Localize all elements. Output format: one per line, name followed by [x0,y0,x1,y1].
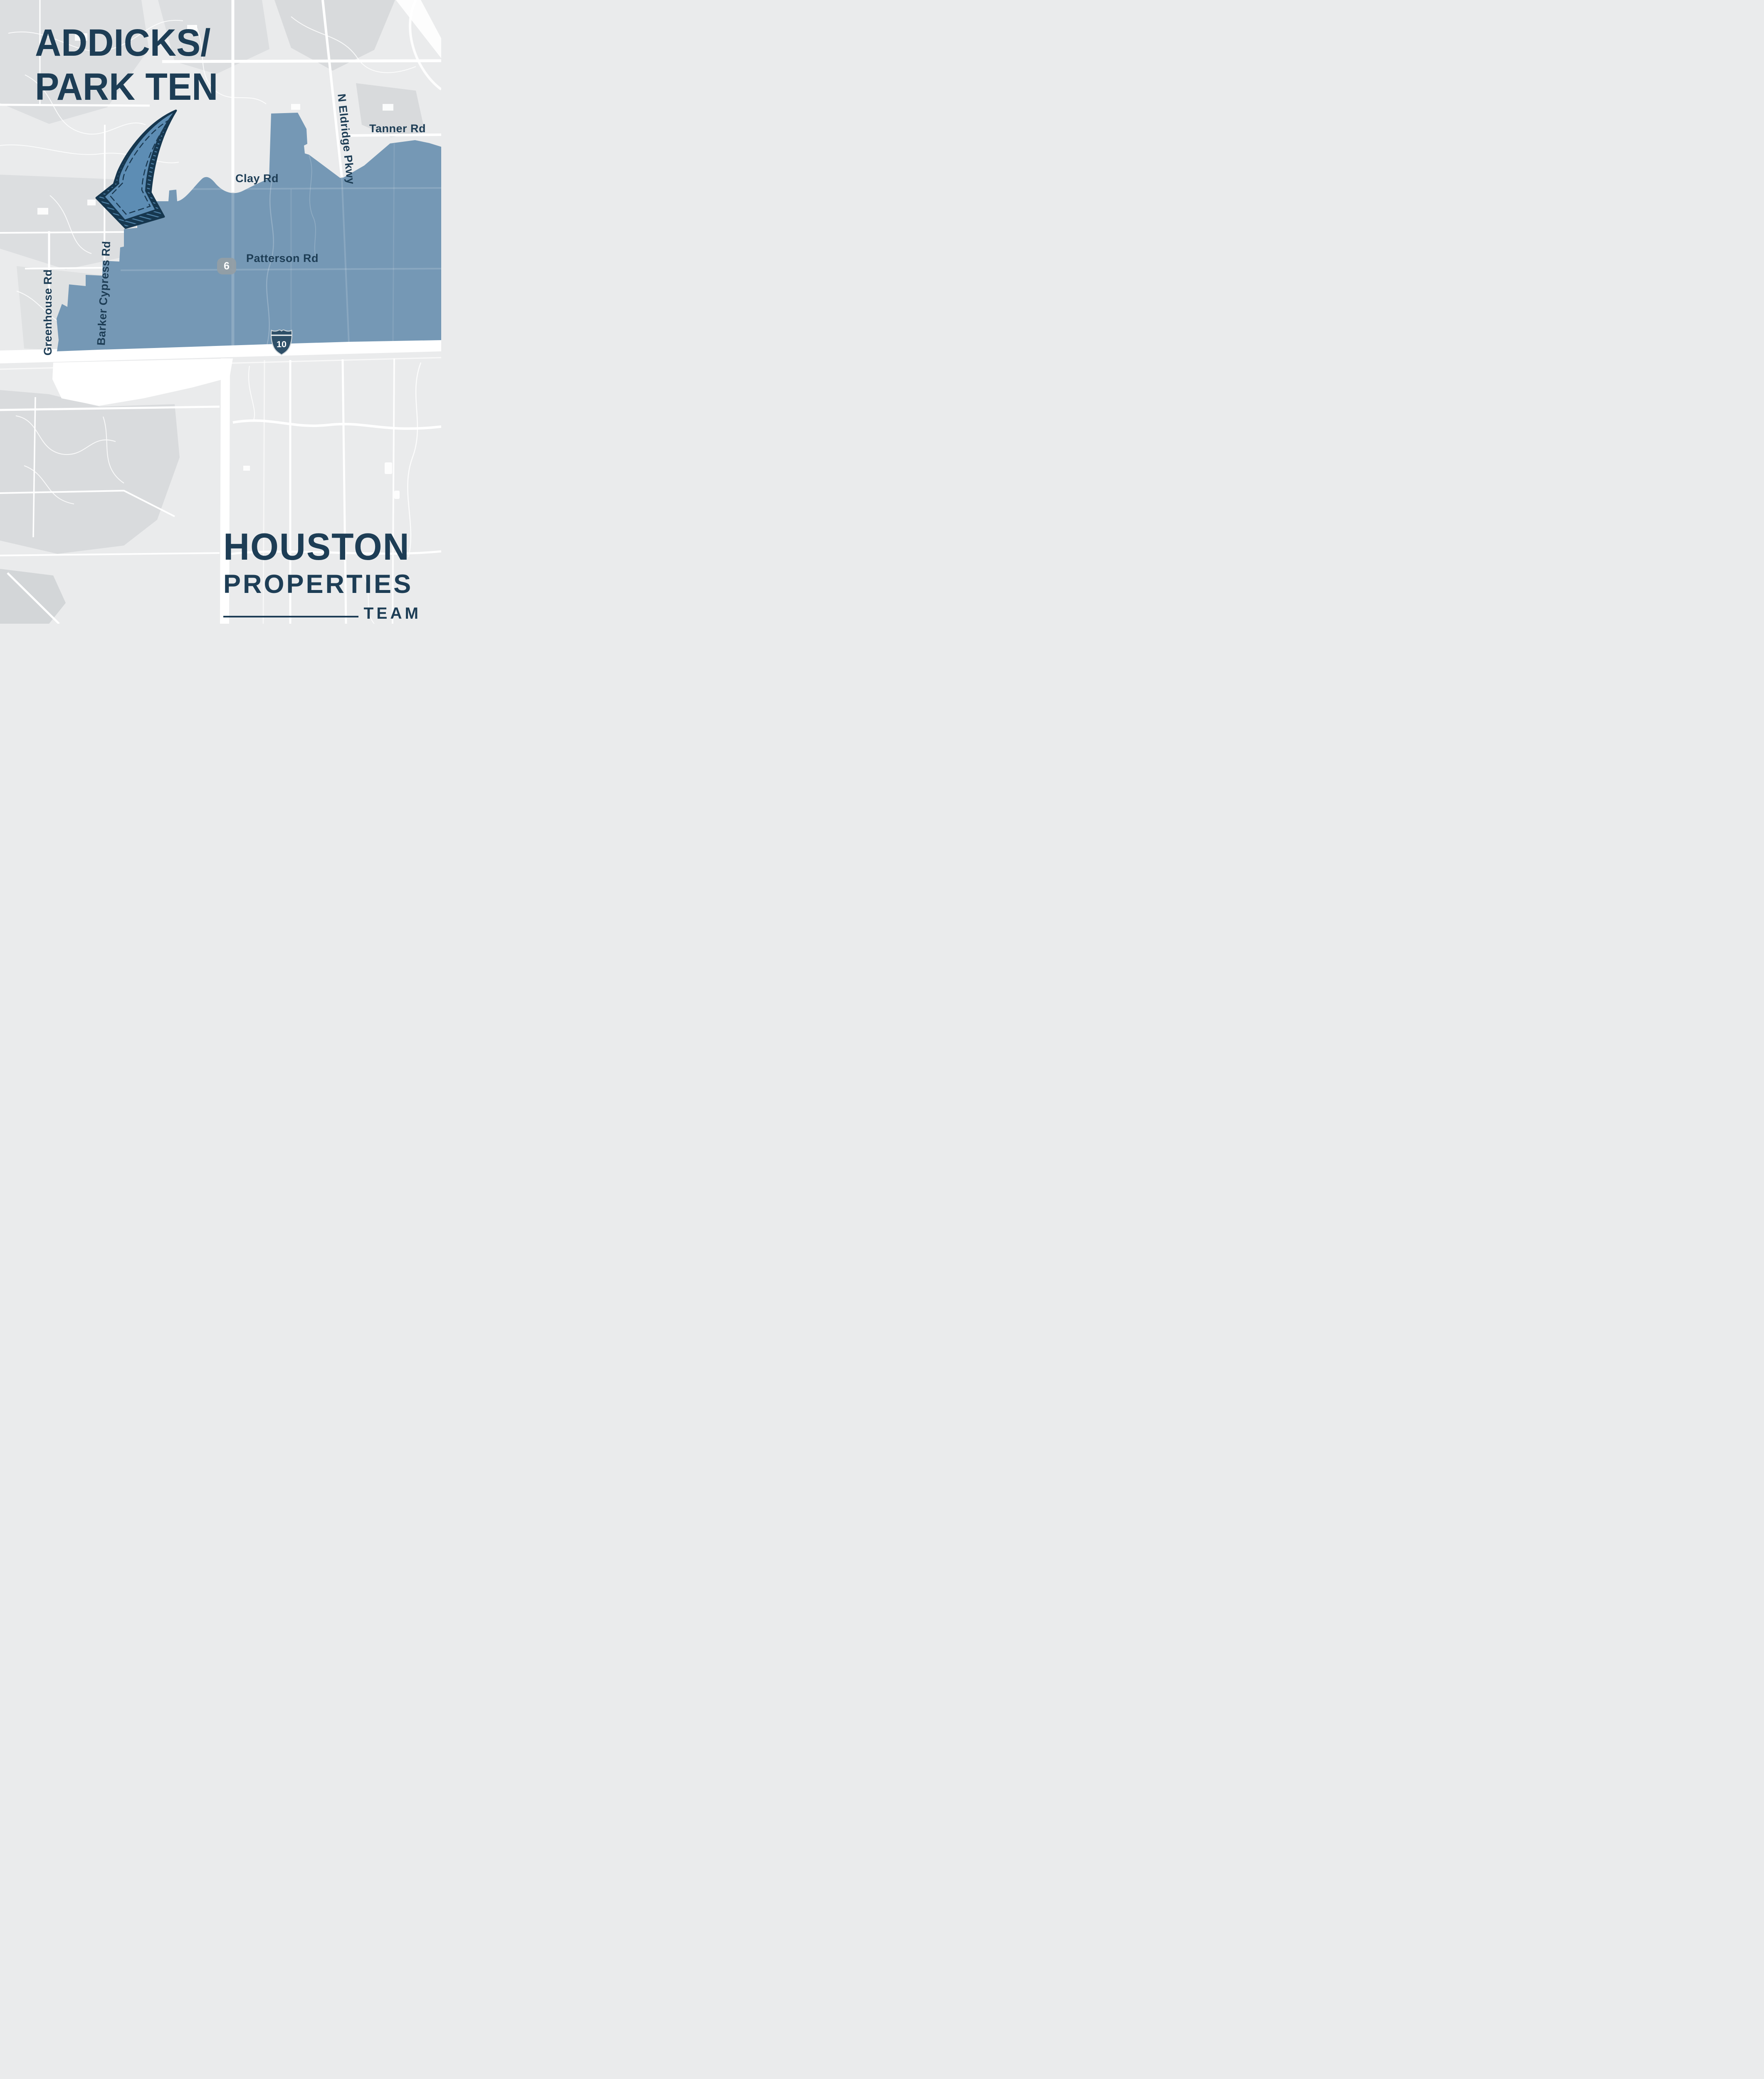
road-label-clay-rd: Clay Rd [235,172,279,185]
interstate-10-number: 10 [277,339,287,349]
road-label-tanner-rd: Tanner Rd [369,122,426,135]
interstate-10-shield: 10 [270,328,293,356]
state-highway-6-number: 6 [224,260,230,272]
road-label-patterson-rd: Patterson Rd [246,252,319,265]
logo-houston: HOUSTON [223,527,413,567]
arrow-pointer-icon [85,102,187,237]
state-highway-6-shield: 6 [217,258,236,274]
brand-logo: HOUSTON PROPERTIES TEAM [223,527,421,623]
page-title-line1: ADDICKS/ [35,21,218,65]
logo-properties: PROPERTIES [223,568,421,600]
logo-rule [223,616,358,617]
logo-team: TEAM [364,605,422,623]
page-title: ADDICKS/ PARK TEN [35,21,218,109]
map-poster: ADDICKS/ PARK TEN Tanner Rd Clay Rd Patt… [0,0,441,624]
road-label-greenhouse-rd: Greenhouse Rd [42,269,54,356]
